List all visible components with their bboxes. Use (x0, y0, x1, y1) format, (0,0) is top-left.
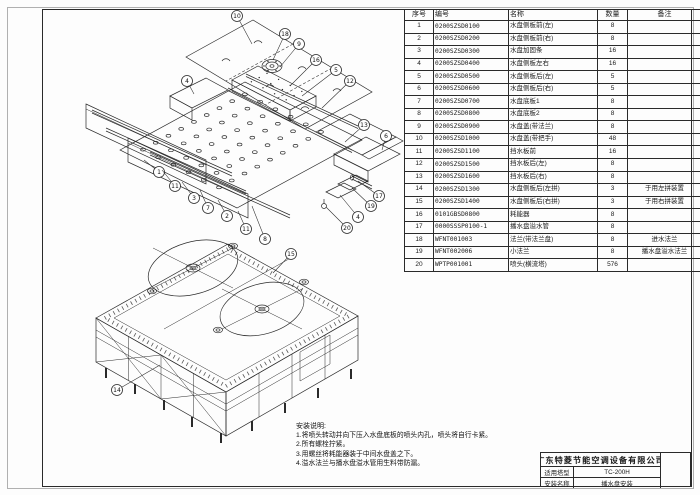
balloon-number: 19 (367, 203, 375, 210)
col-header-remarks: 备注 (628, 10, 700, 21)
table-cell (628, 96, 700, 109)
balloon-number: 4 (356, 214, 360, 221)
table-cell: 3 (598, 196, 628, 209)
tower-model-label: 适用塔型 (541, 466, 573, 477)
table-cell: 0200SZSD0400 (434, 58, 509, 71)
table-cell: 0200SZSD0100 (434, 21, 509, 34)
drawing-sheet: 1018916512413611137211817194201514 序号 编号… (0, 0, 700, 495)
table-cell: 水盘盖(带法兰) (509, 121, 598, 134)
leader-line (302, 70, 336, 96)
balloon-number: 4 (185, 78, 189, 85)
table-cell: 0200SZSD0900 (434, 121, 509, 134)
table-row: 50200SZSD0500水盘侧板后(左)5 (405, 71, 700, 84)
balloon-number: 2 (225, 213, 229, 220)
table-cell: 水盘侧板后(右) (509, 83, 598, 96)
table-cell: 水盘侧板前(左) (509, 21, 598, 34)
col-header-name: 名称 (509, 10, 598, 21)
table-cell: 0200SZSD0500 (434, 71, 509, 84)
table-cell (628, 33, 700, 46)
table-cell (628, 171, 700, 184)
table-cell: 8 (598, 96, 628, 109)
table-cell: 13 (405, 171, 434, 184)
table-cell: WFNT002006 (434, 246, 509, 259)
table-row: 30200SZSD0300水盘加固条16 (405, 46, 700, 59)
table-cell: 48 (598, 133, 628, 146)
balloon-number: 20 (343, 225, 351, 232)
tower-top-face (96, 244, 358, 392)
table-cell: 2 (405, 33, 434, 46)
table-cell: 8 (598, 234, 628, 247)
notes-lines: 1.将喷头转动并向下压入水盘底板的喷头内孔，喷头将自行卡紧。2.所有螺栓拧紧。3… (296, 431, 541, 468)
table-cell: 水盘加固条 (509, 46, 598, 59)
notes-title: 安装说明: (296, 422, 541, 431)
balloon-number: 6 (384, 133, 388, 140)
table-cell: 水盘侧板左右 (509, 58, 598, 71)
table-cell: 播水盘溢水法兰 (628, 246, 700, 259)
table-row: 100200SZSD1000水盘盖(带把手)48 (405, 133, 700, 146)
table-cell (628, 71, 700, 84)
table-cell: 5 (598, 83, 628, 96)
installation-notes: 安装说明: 1.将喷头转动并向下压入水盘底板的喷头内孔，喷头将自行卡紧。2.所有… (296, 422, 541, 468)
table-cell: 0200SZSD1100 (434, 146, 509, 159)
balloon-number: 3 (192, 195, 196, 202)
table-cell: 8 (598, 209, 628, 222)
balloon-number: 11 (242, 226, 250, 233)
table-cell: WPTP001001 (434, 259, 509, 272)
install-name-value: 播水盘安装 (573, 477, 660, 488)
balloon-number: 13 (360, 122, 368, 129)
balloon-number: 17 (375, 193, 383, 200)
table-cell: 0200SZSD0700 (434, 96, 509, 109)
note-line: 2.所有螺栓拧紧。 (296, 440, 541, 449)
table-row: 160101GBSD0800耗能器8 (405, 209, 700, 222)
table-row: 70200SZSD0700水盘底板18 (405, 96, 700, 109)
balloon-number: 10 (233, 13, 241, 20)
left-end-plate (170, 78, 228, 120)
table-cell: 0200SZSD1000 (434, 133, 509, 146)
table-cell: 8 (405, 108, 434, 121)
table-row: 20WPTP001001喷头(横流塔)576 (405, 259, 700, 272)
table-cell: 耗能器 (509, 209, 598, 222)
table-cell: 法兰(带法兰盘) (509, 234, 598, 247)
exploded-view (86, 20, 403, 218)
inlet-flange (262, 60, 282, 73)
col-header-index: 序号 (405, 10, 434, 21)
table-cell: 18 (405, 234, 434, 247)
title-block-side-cell (660, 453, 690, 488)
table-row: 130200SZSD1600挡水板后(右)8 (405, 171, 700, 184)
parts-table-body: 10200SZSD0100水盘侧板前(左)820200SZSD0200水盘侧板前… (405, 21, 700, 272)
table-cell: 19 (405, 246, 434, 259)
walkway-planks (105, 249, 349, 386)
table-cell (628, 83, 700, 96)
table-row: 60200SZSD0600水盘侧板后(右)5 (405, 83, 700, 96)
table-cell: 8 (598, 21, 628, 34)
table-cell: 0101GBSD0800 (434, 209, 509, 222)
table-cell: 14 (405, 184, 434, 197)
energy-dissipator-box (232, 66, 316, 121)
table-cell: 0200SZSD1300 (434, 184, 509, 197)
table-cell: 水盘底板2 (509, 108, 598, 121)
table-cell: 7 (405, 96, 434, 109)
balloon-number: 12 (346, 78, 354, 85)
table-cell: 水盘侧板后(左拼) (509, 184, 598, 197)
table-cell (628, 46, 700, 59)
table-cell: 播水盘溢水管 (509, 221, 598, 234)
table-cell: 3 (405, 46, 434, 59)
table-cell: 0200SZSD1600 (434, 171, 509, 184)
table-row: 150200SZSD1400水盘侧板后(右拼)3于用右拼装置 (405, 196, 700, 209)
table-cell: 4 (405, 58, 434, 71)
table-cell: 挡水板前 (509, 146, 598, 159)
table-cell (628, 21, 700, 34)
parts-table: 序号 编号 名称 数量 备注 10200SZSD0100水盘侧板前(左)8202… (404, 9, 700, 272)
table-cell (628, 221, 700, 234)
table-row: 90200SZSD0900水盘盖(带法兰)8 (405, 121, 700, 134)
title-block: 广东特菱节能空调设备有限公司 适用塔型 TC-200H 安装名称 播水盘安装 (540, 452, 691, 487)
table-cell: 8 (598, 221, 628, 234)
walkway-flanges (148, 243, 309, 333)
table-cell: 0000SSSP0100-1 (434, 221, 509, 234)
balloon-number: 11 (171, 183, 179, 190)
table-cell: 0200SZSD1500 (434, 159, 509, 172)
table-cell: WFNT001003 (434, 234, 509, 247)
install-name-label: 安装名称 (541, 477, 573, 488)
table-cell: 喷头(横流塔) (509, 259, 598, 272)
table-cell: 挡水板后(右) (509, 171, 598, 184)
table-cell: 17 (405, 221, 434, 234)
table-cell: 12 (405, 159, 434, 172)
tower-model-value: TC-200H (573, 466, 660, 477)
table-cell: 进水法兰 (628, 234, 700, 247)
balloon-number: 18 (281, 31, 289, 38)
table-cell: 16 (405, 209, 434, 222)
balloon-number: 14 (113, 387, 121, 394)
table-cell: 水盘侧板后(左) (509, 71, 598, 84)
table-cell (628, 58, 700, 71)
table-cell: 3 (598, 184, 628, 197)
note-line: 3.用螺丝将耗能器装于中间水盘盖之下。 (296, 450, 541, 459)
table-cell: 8 (598, 33, 628, 46)
table-cell: 1 (405, 21, 434, 34)
table-cell: 576 (598, 259, 628, 272)
table-row: 80200SZSD0800水盘底板28 (405, 108, 700, 121)
table-cell: 16 (598, 46, 628, 59)
table-row: 110200SZSD1100挡水板前16 (405, 146, 700, 159)
table-cell: 15 (405, 196, 434, 209)
table-cell: 20 (405, 259, 434, 272)
table-cell: 8 (598, 171, 628, 184)
table-cell: 16 (598, 58, 628, 71)
balloon-number: 5 (334, 67, 338, 74)
table-cell: 0200SZSD0800 (434, 108, 509, 121)
table-row: 40200SZSD0400水盘侧板左右16 (405, 58, 700, 71)
table-cell (628, 159, 700, 172)
table-cell: 小法兰 (509, 246, 598, 259)
fan-opening-left (142, 230, 245, 305)
company-name: 广东特菱节能空调设备有限公司 (541, 453, 660, 466)
table-cell (628, 133, 700, 146)
parts-table-header-row: 序号 编号 名称 数量 备注 (405, 10, 700, 21)
table-cell: 0200SZSD0300 (434, 46, 509, 59)
table-cell: 8 (598, 246, 628, 259)
tower-left-wall (96, 318, 226, 436)
table-cell: 于用右拼装置 (628, 196, 700, 209)
col-header-qty: 数量 (598, 10, 628, 21)
table-row: 18WFNT001003法兰(带法兰盘)8进水法兰 (405, 234, 700, 247)
table-cell: 8 (598, 121, 628, 134)
balloon-number: 16 (312, 57, 320, 64)
table-cell: 6 (405, 83, 434, 96)
col-header-code: 编号 (434, 10, 509, 21)
balloon-number: 15 (287, 251, 295, 258)
balloon-number: 9 (297, 41, 301, 48)
table-cell: 10 (405, 133, 434, 146)
table-cell: 11 (405, 146, 434, 159)
balloon-number: 1 (157, 169, 161, 176)
table-row: 19WFNT002006小法兰8播水盘溢水法兰 (405, 246, 700, 259)
table-row: 10200SZSD0100水盘侧板前(左)8 (405, 21, 700, 34)
table-cell: 5 (598, 71, 628, 84)
table-row: 120200SZSD1500挡水板后(左)8 (405, 159, 700, 172)
table-cell: 0200SZSD0200 (434, 33, 509, 46)
front-side-plates (86, 104, 290, 218)
water-pan-cover-panel (186, 20, 372, 129)
table-cell (628, 259, 700, 272)
table-cell (628, 209, 700, 222)
table-row: 140200SZSD1300水盘侧板后(左拼)3于用左拼装置 (405, 184, 700, 197)
note-line: 4.溢水法兰与播水盘溢水管用生料带防漏。 (296, 459, 541, 468)
table-cell (628, 108, 700, 121)
isometric-assembly-view (96, 230, 358, 443)
table-cell: 于用左拼装置 (628, 184, 700, 197)
tower-right-wall (226, 316, 358, 436)
table-row: 20200SZSD0200水盘侧板前(右)8 (405, 33, 700, 46)
table-cell: 5 (405, 71, 434, 84)
reinforcement-rails (228, 74, 358, 153)
table-cell: 水盘底板1 (509, 96, 598, 109)
table-cell: 16 (598, 146, 628, 159)
table-cell: 水盘侧板前(右) (509, 33, 598, 46)
table-cell: 8 (598, 108, 628, 121)
table-cell: 0200SZSD0600 (434, 83, 509, 96)
table-cell: 水盘侧板后(右拼) (509, 196, 598, 209)
fan-opening-right (214, 273, 310, 345)
balloon-callouts: 1018916512413611137211817194201514 (112, 11, 392, 396)
table-cell: 0200SZSD1400 (434, 196, 509, 209)
table-cell: 9 (405, 121, 434, 134)
table-row: 170000SSSP0100-1播水盘溢水管8 (405, 221, 700, 234)
table-cell (628, 121, 700, 134)
balloon-number: 8 (263, 236, 267, 243)
table-cell (628, 146, 700, 159)
table-cell: 8 (598, 159, 628, 172)
table-cell: 挡水板后(左) (509, 159, 598, 172)
table-cell: 水盘盖(带把手) (509, 133, 598, 146)
balloon-number: 7 (206, 205, 210, 212)
note-line: 1.将喷头转动并向下压入水盘底板的喷头内孔，喷头将自行卡紧。 (296, 431, 541, 440)
